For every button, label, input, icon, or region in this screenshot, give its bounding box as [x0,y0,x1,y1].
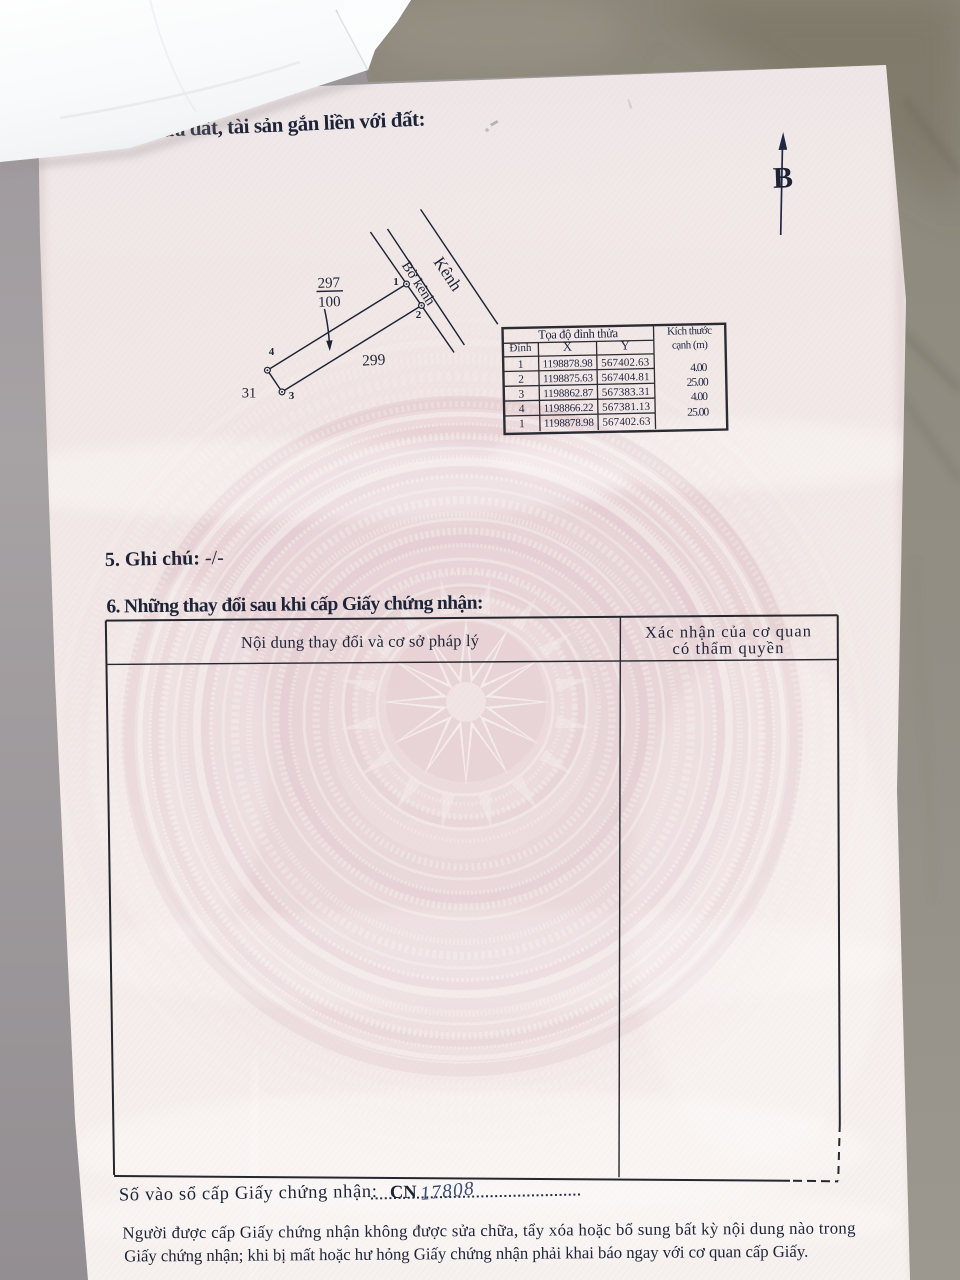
svg-text:Nội dung thay đổi và cơ sở phá: Nội dung thay đổi và cơ sở pháp lý [241,631,480,652]
svg-text:1198878.98: 1198878.98 [543,357,594,370]
svg-text:4: 4 [269,346,275,358]
svg-text:1198862.87: 1198862.87 [543,387,594,400]
svg-text:1198878.98: 1198878.98 [544,417,595,430]
svg-text:4.00: 4.00 [691,391,708,403]
svg-text:100: 100 [318,294,341,311]
svg-text:5. Ghi chú: -/-: 5. Ghi chú: -/- [105,547,224,571]
svg-text:1: 1 [518,359,524,371]
svg-text:2: 2 [518,374,524,386]
svg-text:567404.81: 567404.81 [601,371,649,384]
svg-text:X: X [563,340,572,354]
svg-text:2: 2 [416,309,422,321]
svg-text:1: 1 [393,276,399,288]
svg-text:567402.63: 567402.63 [602,416,651,429]
svg-text:1: 1 [519,418,525,430]
svg-text:3: 3 [289,390,295,402]
svg-text:3: 3 [518,388,524,400]
svg-text:1198866.22: 1198866.22 [544,402,594,415]
svg-text:Số vào sổ cấp Giấy chứng nhận:: Số vào sổ cấp Giấy chứng nhận: [119,1182,377,1206]
svg-text:25.00: 25.00 [687,406,709,418]
svg-text:Y: Y [621,338,630,352]
svg-text:1198875.63: 1198875.63 [543,372,594,385]
svg-text:Kích thước: Kích thước [667,325,712,338]
svg-text:cạnh (m): cạnh (m) [672,339,709,352]
svg-text:có thẩm quyền: có thẩm quyền [672,638,783,658]
svg-text:31: 31 [242,386,257,402]
svg-text:297: 297 [317,275,341,292]
svg-text:Tọa độ đỉnh thửa: Tọa độ đỉnh thửa [538,326,619,342]
svg-text:567381.13: 567381.13 [602,401,651,414]
svg-text:25.00: 25.00 [687,376,709,388]
svg-text:299: 299 [362,351,386,369]
svg-text:567402.63: 567402.63 [601,356,650,369]
svg-text:6. Những thay đổi sau khi cấp: 6. Những thay đổi sau khi cấp Giấy chứng… [106,593,483,618]
svg-text:4: 4 [519,403,525,415]
svg-text:Đỉnh: Đỉnh [509,342,532,354]
svg-text:CN: CN [390,1183,418,1203]
svg-text:B: B [772,161,793,195]
svg-text:567383.31: 567383.31 [602,386,650,399]
svg-text:4.00: 4.00 [690,362,707,374]
